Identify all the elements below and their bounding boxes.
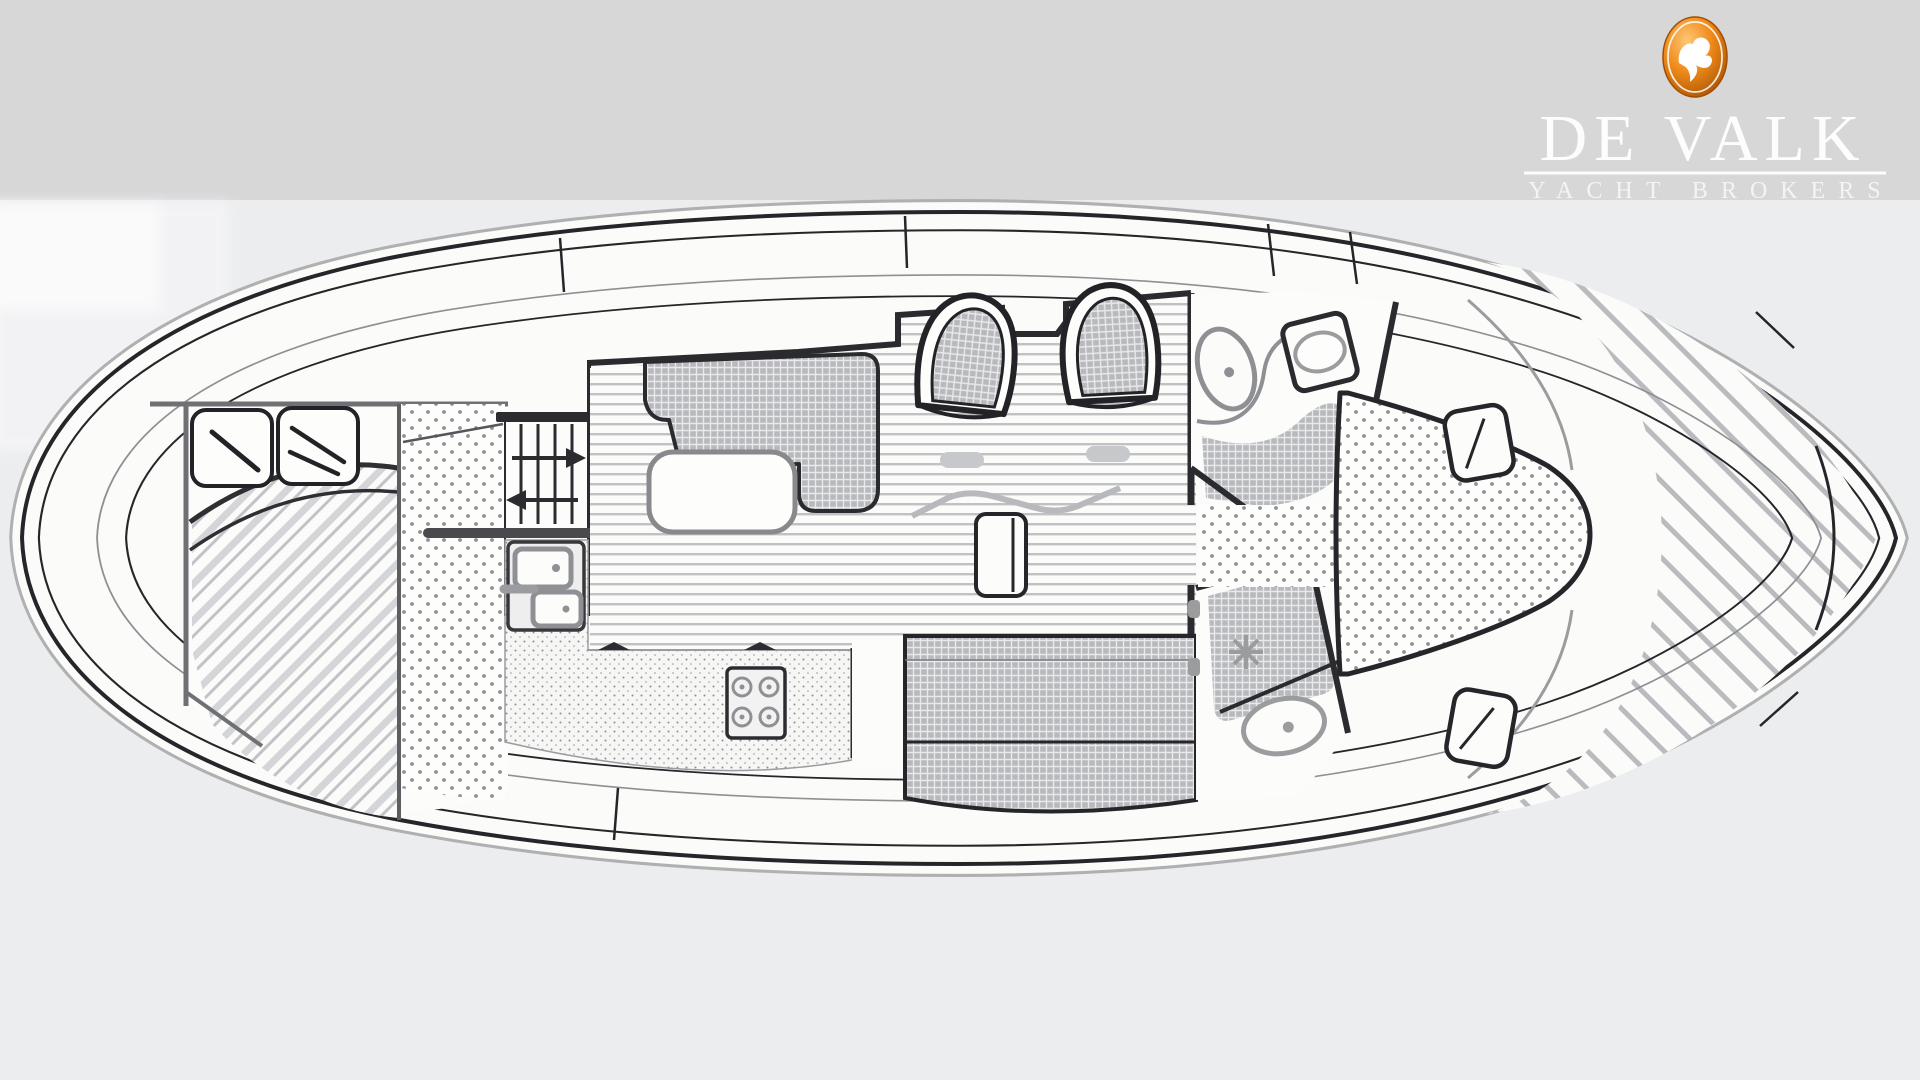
shower-drain-icon [1229,635,1263,669]
deck-hatch [1444,687,1518,769]
seat-pedestal [1086,446,1130,462]
dinette-table [649,452,795,532]
salon-bench [852,636,1196,812]
brand-name: DE VALK [1539,102,1866,175]
floorplan-drawing: DE VALK YACHT BROKERS [0,0,1920,1080]
door-hinge [1188,600,1200,618]
brand-tagline: YACHT BROKERS [1528,178,1893,204]
falcon-icon [1663,17,1727,97]
pillow [278,408,358,484]
seat-pedestal [940,452,984,468]
pillow [192,410,272,486]
stove [727,668,785,738]
wardrobe-locker-strip [401,404,505,800]
forward-passage-floor [1198,505,1348,587]
galley-sink [504,542,584,630]
helm-seat [1059,283,1161,410]
deck-hatch [1443,403,1516,483]
washbasin [1281,311,1360,392]
stairs-top-edge [496,412,594,422]
scanned-yacht-floorplan-page: DE VALK YACHT BROKERS [0,0,1920,1080]
cabin-door [976,514,1026,596]
dinette [645,354,878,532]
door-hinge [1188,658,1200,676]
